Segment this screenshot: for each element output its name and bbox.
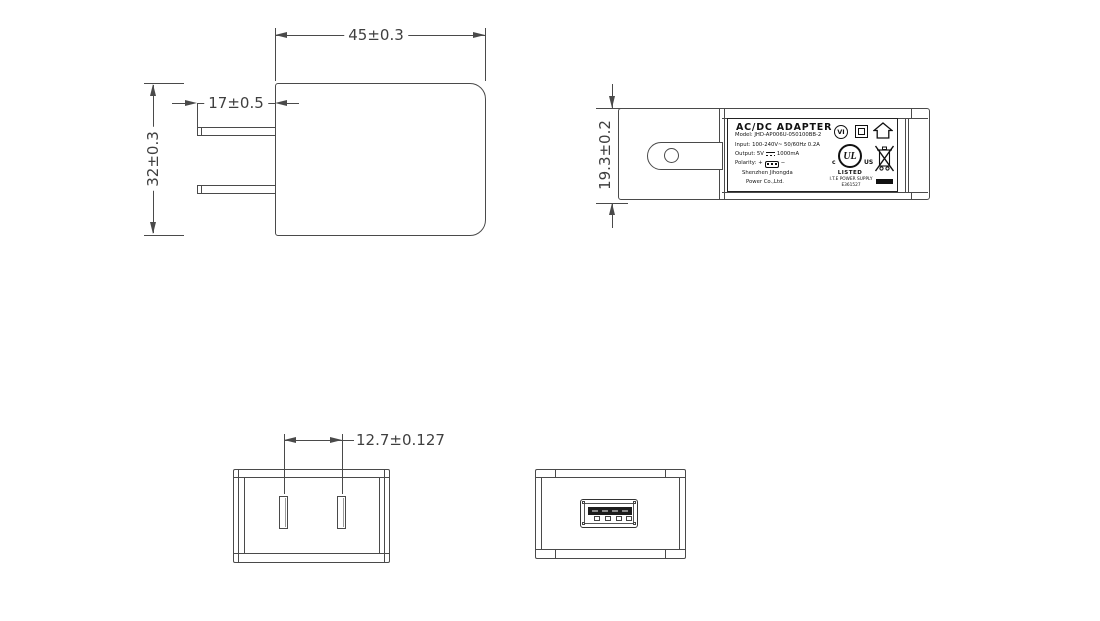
band-tick <box>665 549 666 559</box>
prong-lower-cap-line <box>201 185 202 194</box>
ext-line <box>596 108 628 109</box>
dim-arrow <box>150 84 156 96</box>
dim-arrow <box>185 100 197 106</box>
face-seam-line <box>384 469 385 563</box>
label-polarity: Polarity: + − <box>735 161 785 168</box>
ext-line <box>197 103 198 127</box>
weee-underline-bar <box>876 179 893 184</box>
indoor-use-house-icon <box>873 122 893 139</box>
ul-file-line1: I.T.E POWER SUPPLY <box>822 177 880 182</box>
band-tick <box>555 469 556 477</box>
face-inner-line <box>379 477 380 553</box>
class2-double-insulation-icon <box>855 125 868 138</box>
label-company-1: Shenzhen Jihongda <box>742 171 793 176</box>
usb-corner-mark <box>633 501 636 504</box>
body-seam-line <box>724 108 725 200</box>
usb-connector-icon <box>765 161 779 168</box>
dim-arrow <box>150 222 156 234</box>
prong-upper-cap-line <box>201 127 202 136</box>
ul-mark-us: US <box>864 159 873 166</box>
label-output: Output: 5V 1000mA <box>735 152 799 157</box>
face-seam-line <box>233 477 390 478</box>
prong-lower <box>197 185 276 194</box>
dim-prong-length: 17±0.5 <box>204 94 268 112</box>
ul-file-line2: E361527 <box>829 183 873 188</box>
efficiency-vi-icon: VI <box>834 125 848 139</box>
ext-line <box>284 434 285 494</box>
face-seam-line <box>233 553 390 554</box>
face-seam-line <box>535 477 686 478</box>
label-polarity-word: Polarity: <box>735 161 756 166</box>
usb-contact-tab <box>626 516 632 521</box>
ul-letters: UL <box>843 151 856 162</box>
body-seam-line <box>908 118 909 192</box>
dim-line <box>287 103 299 104</box>
ul-mark-c: c <box>832 159 836 166</box>
dim-line <box>172 103 186 104</box>
face-seam-line <box>238 469 239 563</box>
label-input: Input: 100-240V~ 50/60Hz 0.2A <box>735 143 820 148</box>
body-corner-tick <box>911 192 912 200</box>
dim-arrow <box>609 203 615 215</box>
efficiency-vi-text: VI <box>837 128 844 136</box>
face-seam-line <box>535 549 686 550</box>
adapter-body-front <box>275 83 486 236</box>
label-model: Model: JHD-AP006U-050100BB-2 <box>735 133 821 138</box>
body-seam-line <box>722 192 928 193</box>
usb-tongue <box>588 507 632 515</box>
technical-drawing-canvas: 45±0.3 17±0.5 32±0.3 <box>0 0 1100 621</box>
pin-slot-left <box>279 496 288 529</box>
dim-leader-line <box>342 440 354 441</box>
weee-bin-icon <box>874 143 895 176</box>
label-output-suffix: 1000mA <box>777 152 799 157</box>
pin-slot-right <box>337 496 346 529</box>
usb-contact-mark <box>592 510 598 512</box>
dim-front-height: 32±0.3 <box>144 127 162 191</box>
ext-line <box>342 434 343 494</box>
band-tick <box>555 549 556 559</box>
usb-contact-mark <box>602 510 608 512</box>
usb-corner-mark <box>582 522 585 525</box>
dim-prong-spacing: 12.7±0.127 <box>356 431 445 449</box>
body-corner-tick <box>911 108 912 118</box>
polarity-plus: + <box>758 161 762 166</box>
usb-contact-tab <box>616 516 622 521</box>
dim-arrow <box>275 100 287 106</box>
plug-blade <box>647 142 723 170</box>
dim-arrow <box>330 437 342 443</box>
ul-listed-text: LISTED <box>829 170 871 176</box>
dim-arrow <box>473 32 485 38</box>
prong-upper <box>197 127 276 136</box>
dim-front-width: 45±0.3 <box>344 26 408 44</box>
body-seam-line <box>905 118 906 192</box>
label-output-prefix: Output: 5V <box>735 152 764 157</box>
usb-contact-tab <box>605 516 611 521</box>
dim-side-thickness: 19.3±0.2 <box>596 116 614 194</box>
usb-corner-mark <box>582 501 585 504</box>
pin-face-outline <box>233 469 390 563</box>
class2-inner-square <box>858 128 865 135</box>
blade-hole <box>664 148 679 163</box>
label-company-2: Power Co.,Ltd. <box>746 180 784 185</box>
face-inner-line <box>679 477 680 549</box>
dc-symbol-icon <box>766 152 775 157</box>
ul-mark-icon: UL <box>838 144 862 168</box>
ext-line <box>144 235 184 236</box>
band-tick <box>665 469 666 477</box>
face-inner-line <box>244 477 245 553</box>
ext-line <box>485 28 486 81</box>
dim-arrow <box>284 437 296 443</box>
usb-contact-tab <box>594 516 600 521</box>
product-label: AC/DC ADAPTER Model: JHD-AP006U-050100BB… <box>727 118 898 192</box>
dim-arrow <box>275 32 287 38</box>
usb-contact-mark <box>622 510 628 512</box>
dim-arrow <box>609 96 615 108</box>
usb-contact-mark <box>612 510 618 512</box>
face-inner-line <box>541 477 542 549</box>
polarity-minus: − <box>781 161 785 166</box>
usb-corner-mark <box>633 522 636 525</box>
